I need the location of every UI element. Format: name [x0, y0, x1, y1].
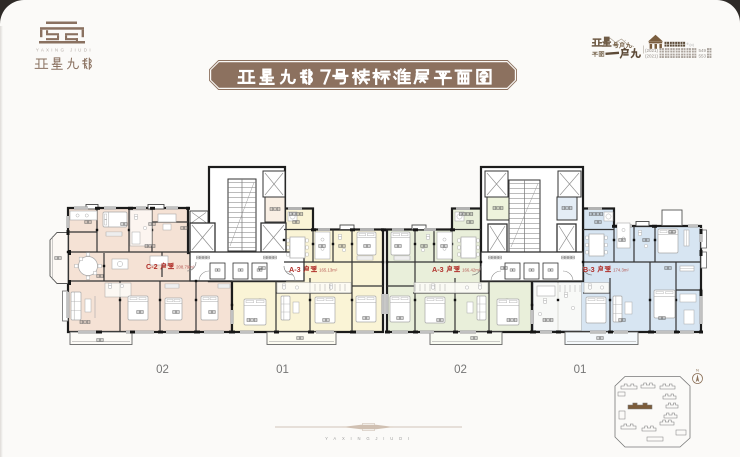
svg-text:A-3: A-3 — [289, 265, 301, 274]
svg-text:174.3m²: 174.3m² — [613, 267, 629, 272]
svg-text:01: 01 — [574, 364, 587, 376]
svg-text:(••): (••) — [690, 43, 694, 47]
svg-text:YAXINGJIUDI: YAXINGJIUDI — [325, 436, 415, 441]
svg-text:208.79m²: 208.79m² — [176, 264, 195, 269]
svg-text:B-3: B-3 — [583, 265, 595, 274]
svg-text:(2021): (2021) — [645, 54, 659, 59]
svg-text:C-2: C-2 — [146, 262, 158, 271]
svg-text:(2021): (2021) — [645, 48, 659, 53]
svg-text:553: 553 — [699, 54, 707, 59]
svg-text:Y A X I N G J I U D I: Y A X I N G J I U D I — [36, 48, 91, 53]
svg-text:549: 549 — [699, 48, 707, 53]
svg-text:166.42m²: 166.42m² — [462, 267, 481, 272]
svg-text:02: 02 — [454, 364, 467, 376]
svg-text:A-3: A-3 — [432, 265, 444, 274]
svg-text:165.13m²: 165.13m² — [319, 267, 338, 272]
svg-text:N: N — [696, 368, 699, 373]
svg-text:01: 01 — [276, 364, 289, 376]
svg-text:02: 02 — [156, 364, 169, 376]
